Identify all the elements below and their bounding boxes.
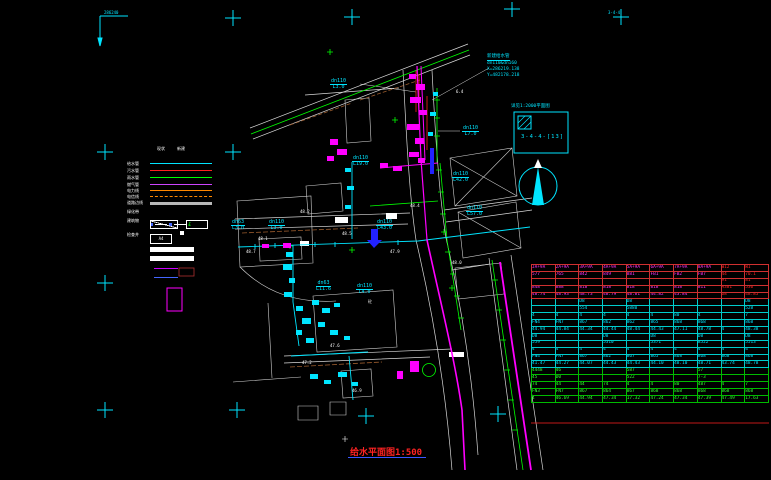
table-cell: 4 xyxy=(555,313,579,320)
table-cell xyxy=(650,306,674,313)
table-cell xyxy=(603,306,627,313)
table-cell: 48.74 xyxy=(532,292,556,299)
table-cell: 4 xyxy=(579,313,603,320)
table-cell: 8A+9A xyxy=(697,265,721,272)
table-cell: 44.34 xyxy=(579,327,603,334)
table-cell: FB2 xyxy=(674,271,698,278)
table-cell: 44 xyxy=(555,382,579,389)
table-cell: 4 xyxy=(721,327,745,334)
legend-sample xyxy=(150,170,212,171)
legend-label: 给水管 xyxy=(127,161,139,166)
table-cell: D8 xyxy=(626,299,650,306)
table-cell: 4 xyxy=(650,382,674,389)
table-cell: 4 xyxy=(697,347,721,354)
table-cell: 4 xyxy=(721,347,745,354)
map-annotation: 46.9 xyxy=(352,389,362,393)
table-cell xyxy=(674,299,698,306)
table-row: 4444448047 xyxy=(532,313,769,320)
sheet-mini-ref: 3-4-4 xyxy=(608,10,620,15)
table-cell: 44.84 xyxy=(555,327,579,334)
table-cell: 868 xyxy=(721,354,745,361)
detail-scale-note: 详见1:2000平面图 xyxy=(511,103,550,109)
callout-y-coord: Y=482178.218 xyxy=(487,73,520,79)
table-cell: 530 xyxy=(745,285,769,292)
table-cell: 48.73 xyxy=(579,292,603,299)
table-cell: 4 xyxy=(745,347,769,354)
table-cell xyxy=(650,299,674,306)
pipe-label: dn110L3.0 xyxy=(268,220,285,231)
map-annotation: 47.2 xyxy=(302,361,312,365)
table-cell xyxy=(721,375,745,382)
table-cell: 868 xyxy=(674,354,698,361)
table-row: 48.7448.9348.7348.7948.8144.8243.846848.… xyxy=(532,292,769,299)
legend-sample xyxy=(150,256,212,294)
table-cell: FB7 xyxy=(697,271,721,278)
map-annotation: 6.4 xyxy=(456,90,463,94)
cad-viewport[interactable]: 286240 3-4-4 新建给水管 dn110&dn160 X=286219.… xyxy=(0,0,771,480)
table-cell: 48.78 xyxy=(697,327,721,334)
table-cell: 4 xyxy=(650,347,674,354)
table-cell: 868 xyxy=(721,389,745,396)
table-row: 44.9444.8444.3444.4448.4444.4347.1148.78… xyxy=(532,327,769,334)
table-cell: 888 xyxy=(555,285,579,292)
table-cell: FN4 xyxy=(532,320,556,327)
table-cell: 849 xyxy=(603,271,627,278)
table-cell: 5371 xyxy=(650,340,674,347)
table-cell: 91 xyxy=(721,278,745,285)
table-cell xyxy=(721,340,745,347)
table-cell: W1 xyxy=(745,265,769,272)
table-cell xyxy=(721,313,745,320)
table-row: 74444474448048747 xyxy=(532,382,769,389)
table-cell: 44 xyxy=(579,382,603,389)
table-cell: 864 xyxy=(603,389,627,396)
table-cell: FN3 xyxy=(532,389,556,396)
table-cell xyxy=(650,278,674,285)
map-annotation: 48.1 xyxy=(258,237,268,241)
table-row: FN4FN7867862862865868868868 xyxy=(532,320,769,327)
building-outlines xyxy=(233,98,521,420)
table-cell: D8 xyxy=(532,333,556,340)
table-cell: 4 xyxy=(579,347,603,354)
pipe-label: dn110L19.0 xyxy=(352,156,369,167)
table-cell: 47.34 xyxy=(674,395,698,402)
table-cell: 41.47 xyxy=(532,361,556,368)
table-cell: 48.93 xyxy=(555,292,579,299)
table-cell: 17.63 xyxy=(745,395,769,402)
table-cell: 577 xyxy=(532,271,556,278)
pipe-label: dn110L43.0 xyxy=(376,220,393,231)
table-cell: 4 xyxy=(532,347,556,354)
table-cell xyxy=(721,299,745,306)
table-row: D8D8D8 xyxy=(532,299,769,306)
table-cell: 4 xyxy=(721,382,745,389)
table-cell: D8 xyxy=(603,333,627,340)
table-cell xyxy=(603,368,627,375)
table-cell: 811 xyxy=(697,285,721,292)
table-cell xyxy=(745,375,769,382)
table-row: 45D05227-3 xyxy=(532,375,769,382)
table-row: D8D8D8D8D8 xyxy=(532,333,769,340)
table-cell: 7 xyxy=(745,382,769,389)
map-annotation: 48.0 xyxy=(452,261,462,265)
table-cell: 6A+9A xyxy=(650,265,674,272)
map-annotation: 48.2 xyxy=(300,210,310,214)
map-annotation: 48.5 xyxy=(342,232,352,236)
table-row: 848888818818818818818811A381530 xyxy=(532,285,769,292)
table-cell: 865 xyxy=(650,320,674,327)
table-row: 9181 xyxy=(532,278,769,285)
legend-label: 检查井 xyxy=(127,232,139,237)
table-cell xyxy=(721,368,745,375)
table-cell: FB1 xyxy=(650,271,674,278)
table-cell: 80 xyxy=(674,313,698,320)
table-cell: 4 xyxy=(555,347,579,354)
table-cell: 868 xyxy=(697,389,721,396)
corner-coordinate-text: 286240 xyxy=(104,10,118,15)
table-cell: 5310 xyxy=(603,340,627,347)
legend-label: 绿化带 xyxy=(127,209,139,214)
table-cell: 7 xyxy=(745,313,769,320)
table-row: JA+9A2A+9A3A+9A4A+9A5A+9A6A+9A7A+9A8A+9A… xyxy=(532,265,769,272)
table-cell: 43.74 xyxy=(721,361,745,368)
table-cell: D8 xyxy=(745,333,769,340)
table-cell: 5513 xyxy=(745,340,769,347)
pipe-label: dn110L4.0 xyxy=(356,284,373,295)
legend-sample xyxy=(150,202,212,205)
table-cell xyxy=(697,278,721,285)
map-annotation: 47.9 xyxy=(390,250,400,254)
table-cell xyxy=(603,299,627,306)
table-cell: 862 xyxy=(603,354,627,361)
table-cell: 44.44 xyxy=(603,327,627,334)
table-cell: JA+9A xyxy=(532,265,556,272)
table-cell xyxy=(555,333,579,340)
north-arrow xyxy=(519,159,557,205)
table-cell: 862 xyxy=(603,320,627,327)
table-cell: 868 xyxy=(650,389,674,396)
table-cell: 44.43 xyxy=(603,361,627,368)
table-cell: 868 xyxy=(745,320,769,327)
table-cell: 867 xyxy=(579,320,603,327)
table-cell: D8 xyxy=(745,299,769,306)
table-cell: 868 xyxy=(745,354,769,361)
map-annotation: 48.7 xyxy=(246,250,256,254)
table-cell: 7A+9A xyxy=(674,265,698,272)
table-cell: D0 xyxy=(555,375,579,382)
table-cell: 4 xyxy=(532,313,556,320)
table-cell: 47.49 xyxy=(721,395,745,402)
table-cell xyxy=(721,333,745,340)
table-row: 446.6944.9447.3417.3247.2447.3447.3947.4… xyxy=(532,395,769,402)
table-cell xyxy=(579,368,603,375)
table-cell: 48.79 xyxy=(603,292,627,299)
legend-label: 建筑物 xyxy=(127,218,139,223)
table-cell xyxy=(721,306,745,313)
pipe-label: dn110L3.0 xyxy=(330,79,347,90)
table-cell: FN7 xyxy=(555,354,579,361)
table-cell: 4 xyxy=(603,313,627,320)
table-row: 4444444444 xyxy=(532,347,769,354)
table-cell: 8522 xyxy=(697,340,721,347)
table-cell: 47.24 xyxy=(650,395,674,402)
table-cell xyxy=(555,340,579,347)
legend-column-header: 现状 xyxy=(157,146,165,152)
table-cell: 68 xyxy=(721,292,745,299)
legend-sample xyxy=(150,163,212,164)
table-cell: 4 xyxy=(650,313,674,320)
table-cell: 868 xyxy=(674,320,698,327)
table-cell: 48.38 xyxy=(745,327,769,334)
table-cell: 818 xyxy=(650,285,674,292)
callout-title: 新建给水管 xyxy=(487,54,510,61)
table-cell xyxy=(555,306,579,313)
title-underline xyxy=(348,457,426,458)
pipe-label: dn110L7.0 xyxy=(462,126,479,137)
table-cell: 80 xyxy=(674,382,698,389)
table-cell: 74 xyxy=(532,382,556,389)
legend-label: 污水管 xyxy=(127,168,139,173)
table-cell: 554 xyxy=(579,306,603,313)
table-cell: 48.44 xyxy=(626,327,650,334)
table-cell: 842 xyxy=(579,271,603,278)
table-cell: 522 xyxy=(626,375,650,382)
table-cell: 47.39 xyxy=(697,395,721,402)
table-cell xyxy=(650,375,674,382)
table-cell: 4 xyxy=(697,313,721,320)
table-cell: 44.43 xyxy=(626,361,650,368)
table-cell: 45 xyxy=(532,375,556,382)
table-cell: D8 xyxy=(697,333,721,340)
table-cell xyxy=(532,278,556,285)
legend-label: 电信线 xyxy=(127,194,139,199)
table-cell: 43.84 xyxy=(674,292,698,299)
table-cell: 4 xyxy=(603,347,627,354)
table-cell: 70.1 xyxy=(745,271,769,278)
table-cell xyxy=(579,375,603,382)
table-cell: 4 xyxy=(532,395,556,402)
coordinate-callout: 新建给水管 dn110&dn160 X=286219.138 Y=482178.… xyxy=(487,54,520,79)
table-cell xyxy=(555,278,579,285)
table-row: 41.4744.2744.0744.4344.4344.1048.1048.71… xyxy=(532,361,769,368)
table-cell: 4 xyxy=(626,313,650,320)
table-cell xyxy=(674,306,698,313)
detail-box xyxy=(514,112,568,153)
table-cell: 57 xyxy=(697,368,721,375)
pipe-label: dn110L42.0 xyxy=(452,172,469,183)
table-cell: 46 xyxy=(555,368,579,375)
pipe-data-table: JA+9A2A+9A3A+9A4A+9A5A+9A6A+9A7A+9A8A+9A… xyxy=(531,264,769,403)
table-row: 5595310537185225513 xyxy=(532,340,769,347)
table-cell: 5880 xyxy=(626,306,650,313)
legend-label: 燃气管 xyxy=(127,182,139,187)
table-cell: 868 xyxy=(697,320,721,327)
table-cell xyxy=(579,333,603,340)
table-cell xyxy=(697,292,721,299)
table-cell xyxy=(674,278,698,285)
table-cell xyxy=(579,278,603,285)
table-cell: 865 xyxy=(650,354,674,361)
table-cell: W12 xyxy=(721,265,745,272)
magenta-fittings xyxy=(262,74,427,379)
table-cell: 2A+9A xyxy=(555,265,579,272)
legend-sample xyxy=(150,190,212,191)
table-cell: 867 xyxy=(626,389,650,396)
legend-label: 雨水管 xyxy=(127,175,139,180)
table-cell: 44.43 xyxy=(650,327,674,334)
table-cell xyxy=(579,340,603,347)
table-cell: 81 xyxy=(745,278,769,285)
table-cell: 44.07 xyxy=(579,361,603,368)
table-cell: 44.94 xyxy=(532,327,556,334)
legend-label: 电力线 xyxy=(127,188,139,193)
table-cell: 44 xyxy=(721,271,745,278)
table-cell xyxy=(626,278,650,285)
table-cell: 587 xyxy=(626,368,650,375)
table-row: 577765842849881FB1FB2FB74470.1 xyxy=(532,271,769,278)
water-pipes-cyan xyxy=(238,92,530,400)
table-cell xyxy=(555,299,579,306)
table-cell: 881 xyxy=(626,271,650,278)
table-cell: 47.11 xyxy=(674,327,698,334)
table-cell: 867 xyxy=(579,389,603,396)
table-cell xyxy=(674,375,698,382)
cyan-fittings xyxy=(283,92,438,386)
table-cell xyxy=(650,368,674,375)
table-cell xyxy=(697,306,721,313)
table-cell: 867 xyxy=(579,354,603,361)
table-cell: 48.10 xyxy=(674,361,698,368)
table-cell: FN7 xyxy=(555,389,579,396)
table-cell: 7-3 xyxy=(697,375,721,382)
road-lines xyxy=(235,44,543,470)
table-cell: 4 xyxy=(674,347,698,354)
table-row: 44484658757 xyxy=(532,368,769,375)
table-cell: 818 xyxy=(674,285,698,292)
table-row: FN3FN7867864867868868868868868 xyxy=(532,389,769,396)
table-cell xyxy=(626,333,650,340)
table-cell xyxy=(721,320,745,327)
table-cell: 818 xyxy=(603,285,627,292)
table-row: FN4FN7867862867865868868868868 xyxy=(532,354,769,361)
table-cell: 848 xyxy=(532,285,556,292)
table-cell: 868 xyxy=(697,354,721,361)
table-cell: 818 xyxy=(626,285,650,292)
table-cell: 818 xyxy=(579,285,603,292)
table-cell xyxy=(603,278,627,285)
map-annotation: 砼 xyxy=(368,300,372,304)
table-cell: 4 xyxy=(626,382,650,389)
table-row: 5545880528 xyxy=(532,306,769,313)
table-cell xyxy=(532,306,556,313)
table-cell xyxy=(697,299,721,306)
legend-sample xyxy=(150,177,212,178)
table-cell: 48.85 xyxy=(745,292,769,299)
detail-sheet-ref: 3-4-4-[13] xyxy=(521,134,564,140)
drawing-geometry xyxy=(0,0,771,480)
table-cell xyxy=(626,340,650,347)
table-cell: 862 xyxy=(626,320,650,327)
table-cell: 765 xyxy=(555,271,579,278)
table-cell: 3A+9A xyxy=(579,265,603,272)
table-cell: 487 xyxy=(697,382,721,389)
table-cell: 868 xyxy=(674,389,698,396)
table-cell: FN4 xyxy=(532,354,556,361)
legend-label: 道路边线 xyxy=(127,200,143,205)
table-cell: 559 xyxy=(532,340,556,347)
legend-sample xyxy=(150,196,212,197)
table-cell: 868 xyxy=(745,389,769,396)
table-cell: 46.69 xyxy=(555,395,579,402)
table-cell: 44.27 xyxy=(555,361,579,368)
table-cell: 867 xyxy=(626,354,650,361)
table-cell: 4A+9A xyxy=(603,265,627,272)
table-cell: 44.82 xyxy=(650,292,674,299)
table-cell: 5A+9A xyxy=(626,265,650,272)
pipe-label: dn110L57.0 xyxy=(466,206,483,217)
table-cell xyxy=(674,368,698,375)
table-cell: 44.10 xyxy=(650,361,674,368)
table-cell: 48.71 xyxy=(697,361,721,368)
table-cell: 528 xyxy=(745,306,769,313)
table-cell: 4448 xyxy=(532,368,556,375)
table-cell: 48.81 xyxy=(626,292,650,299)
table-cell: 47.34 xyxy=(603,395,627,402)
legend: 现状新建给水管污水管雨水管燃气管电力线电信线道路边线绿化带£建筑物检查井A4 xyxy=(127,146,222,266)
legend-column-header: 新建 xyxy=(177,146,185,152)
table-cell xyxy=(674,333,698,340)
pipe-label: dn63L11.6 xyxy=(316,281,331,292)
table-cell: 48.78 xyxy=(745,361,769,368)
map-annotation: 48.4 xyxy=(410,204,420,208)
table-cell xyxy=(532,299,556,306)
table-cell: A381 xyxy=(721,285,745,292)
table-cell: 44.94 xyxy=(579,395,603,402)
table-cell: 74 xyxy=(603,382,627,389)
table-cell xyxy=(745,368,769,375)
table-cell: FN7 xyxy=(555,320,579,327)
table-cell xyxy=(674,340,698,347)
table-cell: D8 xyxy=(650,333,674,340)
pipe-label: dn63L3.0 xyxy=(231,220,245,231)
table-cell: 4 xyxy=(626,347,650,354)
table-cell: D8 xyxy=(579,299,603,306)
table-cell: 17.32 xyxy=(626,395,650,402)
map-annotation: 47.6 xyxy=(330,344,340,348)
table-cell xyxy=(603,375,627,382)
legend-sample xyxy=(150,184,212,185)
